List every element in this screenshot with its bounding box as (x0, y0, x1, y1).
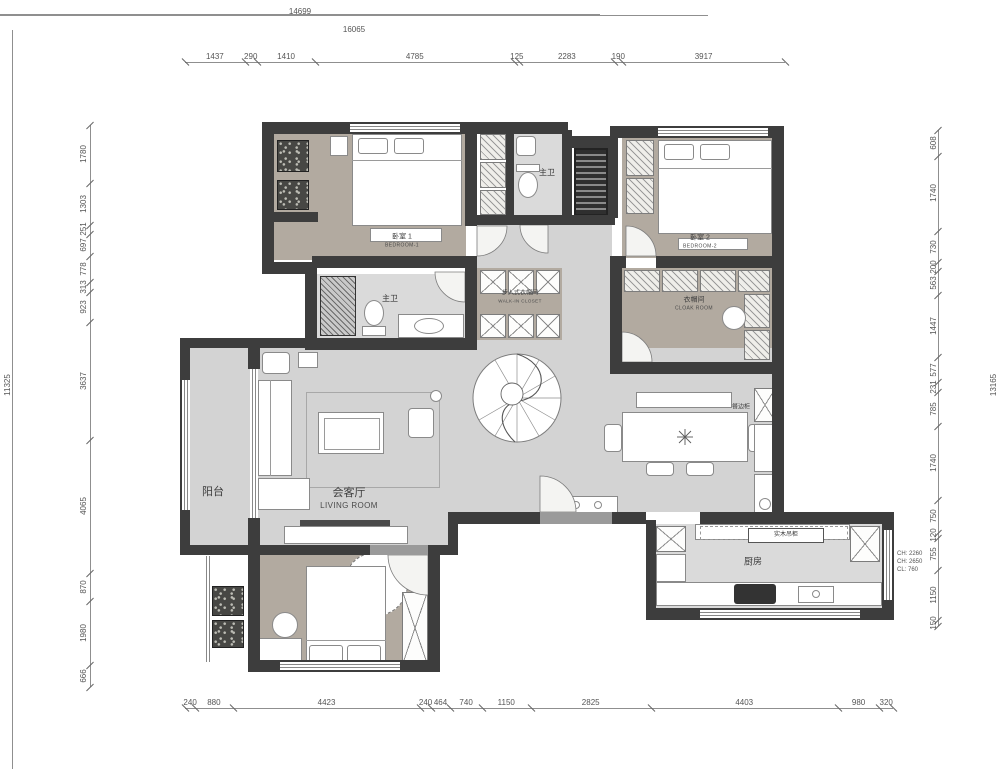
label-cloak-room: 衣帽间CLOAK ROOM (675, 297, 713, 312)
wardrobe-shelf (480, 162, 506, 188)
wall-segment (448, 512, 458, 555)
sink (516, 136, 536, 156)
wardrobe-shelf (480, 134, 506, 160)
decor-dot (572, 501, 580, 509)
wardrobe (626, 140, 654, 176)
pillow (664, 144, 694, 160)
floor-plan: 14699 14372901410478512522831903917 2408… (0, 0, 1000, 769)
nightstand (330, 136, 348, 156)
cabinet-callout: 实木吊柜 (748, 528, 824, 543)
wall-segment (772, 126, 784, 388)
toilet-tank (516, 164, 540, 172)
wardrobe (626, 178, 654, 214)
wardrobe (744, 330, 770, 360)
dining-chair (686, 462, 714, 476)
wall-segment (784, 512, 894, 524)
dim-chain-left: 1780130325169777831392336374065870198066… (78, 125, 91, 687)
ottoman (722, 306, 746, 330)
wall-segment (455, 512, 540, 524)
label-living-room: 会客厅LIVING ROOM (320, 487, 378, 511)
wall-segment (312, 256, 465, 268)
wardrobe (402, 592, 428, 664)
label-kitchen: 厨房 (744, 556, 762, 567)
closet-cabinet (508, 314, 534, 338)
plant-box (277, 140, 309, 172)
basin (414, 318, 444, 334)
wall-segment (610, 262, 622, 374)
blanket-line (658, 168, 772, 169)
wall-segment (612, 512, 646, 524)
stool (272, 612, 298, 638)
dining-chair (646, 462, 674, 476)
wall-segment (305, 262, 317, 350)
plant-box (277, 180, 309, 210)
closet-cabinet (480, 314, 506, 338)
wall-segment (258, 545, 370, 555)
tv (300, 520, 390, 526)
wall-column (248, 345, 260, 369)
bedroom-3-threshold (370, 545, 428, 555)
label-walk-in-closet: 步入式衣帽间WALK-IN CLOSET (498, 290, 541, 303)
tv-cabinet (284, 526, 408, 544)
window (280, 662, 400, 670)
wardrobe (662, 270, 698, 292)
sofa (258, 380, 292, 476)
stove (734, 584, 776, 604)
closet-cabinet (536, 314, 560, 338)
side-table (298, 352, 318, 368)
decor-dot (594, 501, 602, 509)
balcony-sliding-door (250, 369, 258, 518)
faucet (812, 590, 820, 598)
dim-chain-right: 6081740730200563144757723178517407501207… (926, 130, 939, 626)
dim-total-right: 11325 (0, 592, 13, 769)
toilet-tank (362, 326, 386, 336)
kitchen-unit (656, 554, 686, 582)
wall-segment (465, 130, 477, 226)
label-master-bath: 主卫 (382, 294, 398, 304)
fridge (850, 526, 880, 562)
wall-segment (305, 338, 477, 350)
kitchen-height-notes: CH: 2260CH: 2650CL: 760 (897, 550, 922, 574)
wall-segment (506, 130, 514, 218)
entry-threshold (540, 512, 612, 524)
wall-segment (700, 512, 784, 524)
window (182, 380, 190, 510)
wall-segment (610, 362, 784, 374)
armchair (262, 352, 290, 374)
pillow (358, 138, 388, 154)
shower (320, 276, 356, 336)
label-bedroom-2: 卧室 2BEDROOM-2 (683, 235, 717, 250)
wardrobe (738, 270, 770, 292)
wall-segment (772, 386, 784, 524)
cabinet-knob (759, 498, 771, 510)
plant-box (212, 620, 244, 648)
wardrobe-shelf (480, 190, 506, 215)
dining-table (622, 412, 748, 462)
toilet-bowl (364, 300, 384, 326)
coffee-table-inner (324, 418, 380, 450)
dim-chain-top: 14372901410478512522831903917 (185, 48, 785, 63)
dim-total-top: 14699 (0, 0, 600, 15)
label-bath-2: 主卫 (539, 168, 555, 178)
label-balcony: 阳台 (202, 486, 224, 500)
wall-column (248, 518, 260, 545)
dim-chain-bottom: 2408804423240464740115028254403980320 (185, 694, 893, 709)
wall-segment (465, 256, 477, 350)
window (658, 128, 768, 136)
wall-segment (262, 212, 318, 222)
wall-segment (477, 215, 615, 225)
kitchen-unit (656, 526, 686, 552)
wall-segment (428, 545, 440, 672)
sofa-line (270, 380, 271, 476)
wall-segment (248, 552, 260, 670)
wall-segment (646, 520, 656, 620)
dim-total-bottom: 16065 (0, 15, 708, 30)
window (700, 610, 860, 618)
wall-segment (608, 136, 618, 218)
floor-lamp (430, 390, 442, 402)
toilet-bowl (518, 172, 538, 198)
armchair (408, 408, 434, 438)
wardrobe (744, 294, 770, 328)
pillow (700, 144, 730, 160)
label-bedroom-1: 卧室 1BEDROOM-1 (385, 234, 419, 249)
wardrobe (700, 270, 736, 292)
wall-segment (562, 130, 572, 218)
label-sideboard: 餐边柜 (732, 404, 750, 412)
stair-shaft (574, 148, 608, 216)
window (204, 556, 212, 662)
window (350, 124, 460, 132)
blanket-line (306, 640, 386, 641)
wall-segment (180, 545, 258, 555)
dresser (258, 638, 302, 662)
dining-chair (604, 424, 622, 452)
blanket-line (352, 160, 462, 161)
dim-total-left: 13165 (0, 30, 13, 592)
plant-box (212, 586, 244, 616)
sideboard (636, 392, 732, 408)
wall-segment (656, 256, 784, 268)
wardrobe (624, 270, 660, 292)
wall-segment (262, 122, 274, 274)
chaise (258, 478, 310, 510)
pillow (394, 138, 424, 154)
window (884, 530, 892, 600)
